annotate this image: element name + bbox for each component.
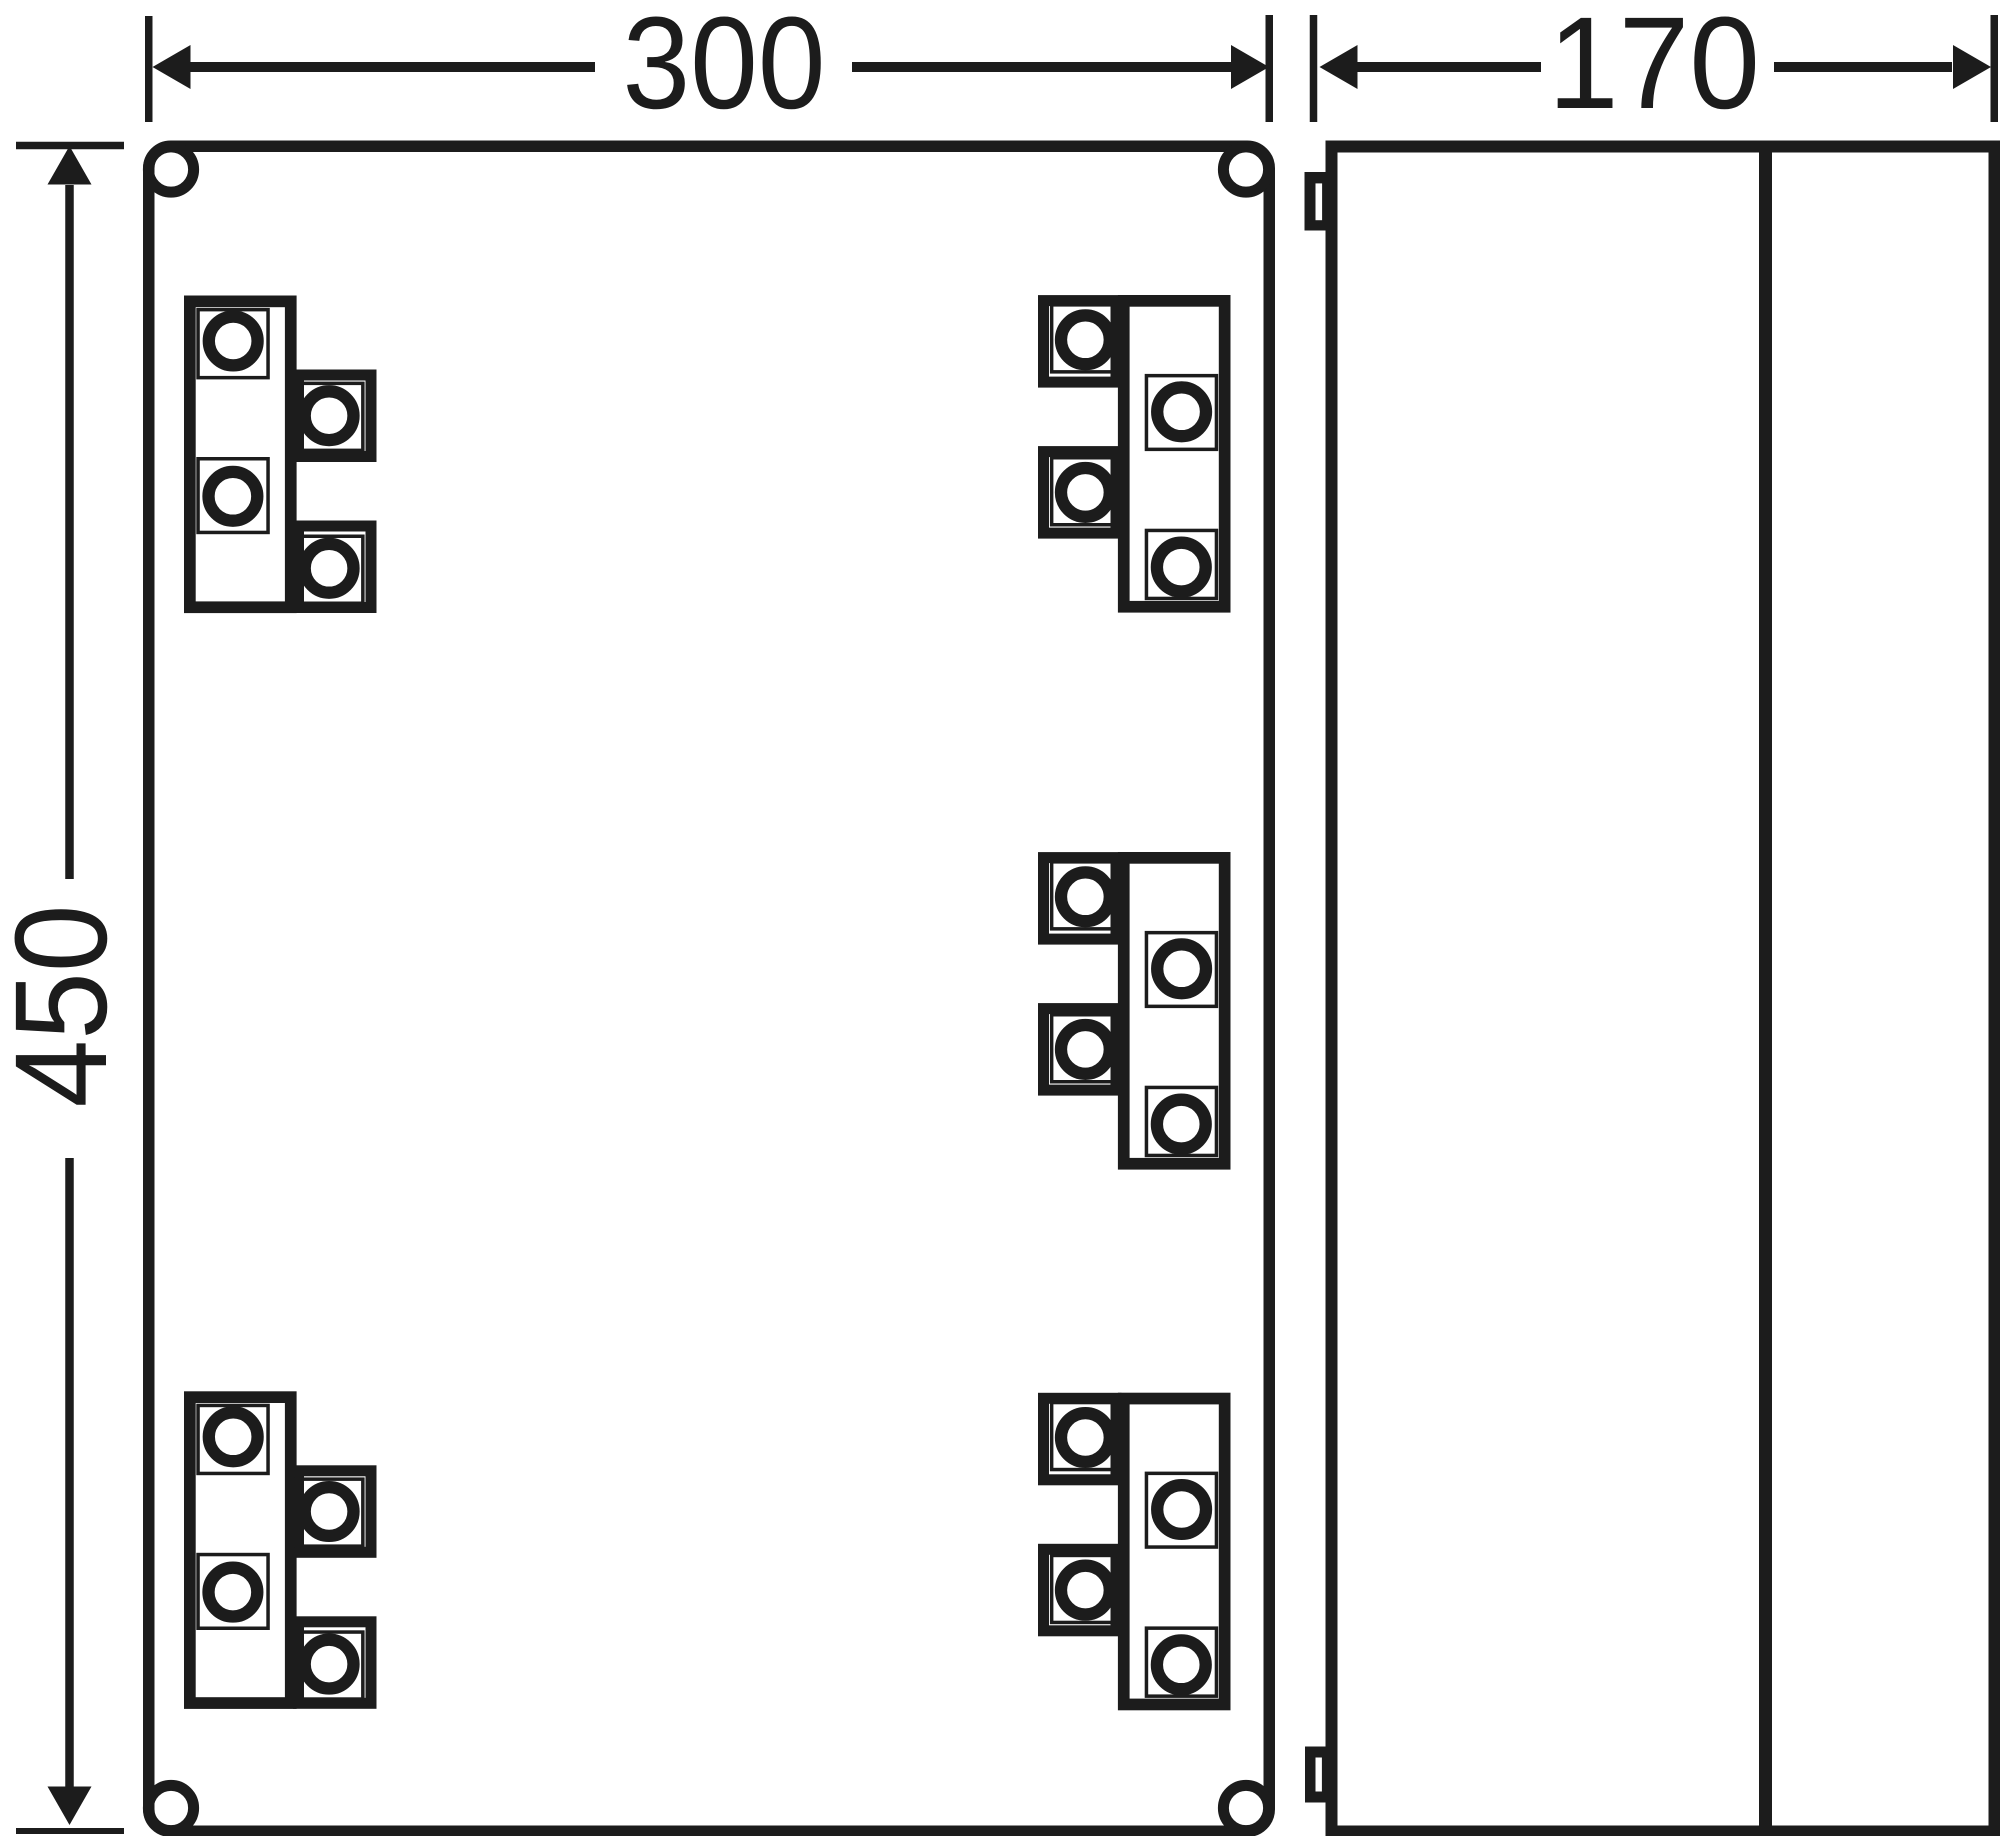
svg-text:450: 450 [0,905,134,1108]
svg-text:170: 170 [1548,0,1760,136]
svg-text:300: 300 [623,0,826,136]
